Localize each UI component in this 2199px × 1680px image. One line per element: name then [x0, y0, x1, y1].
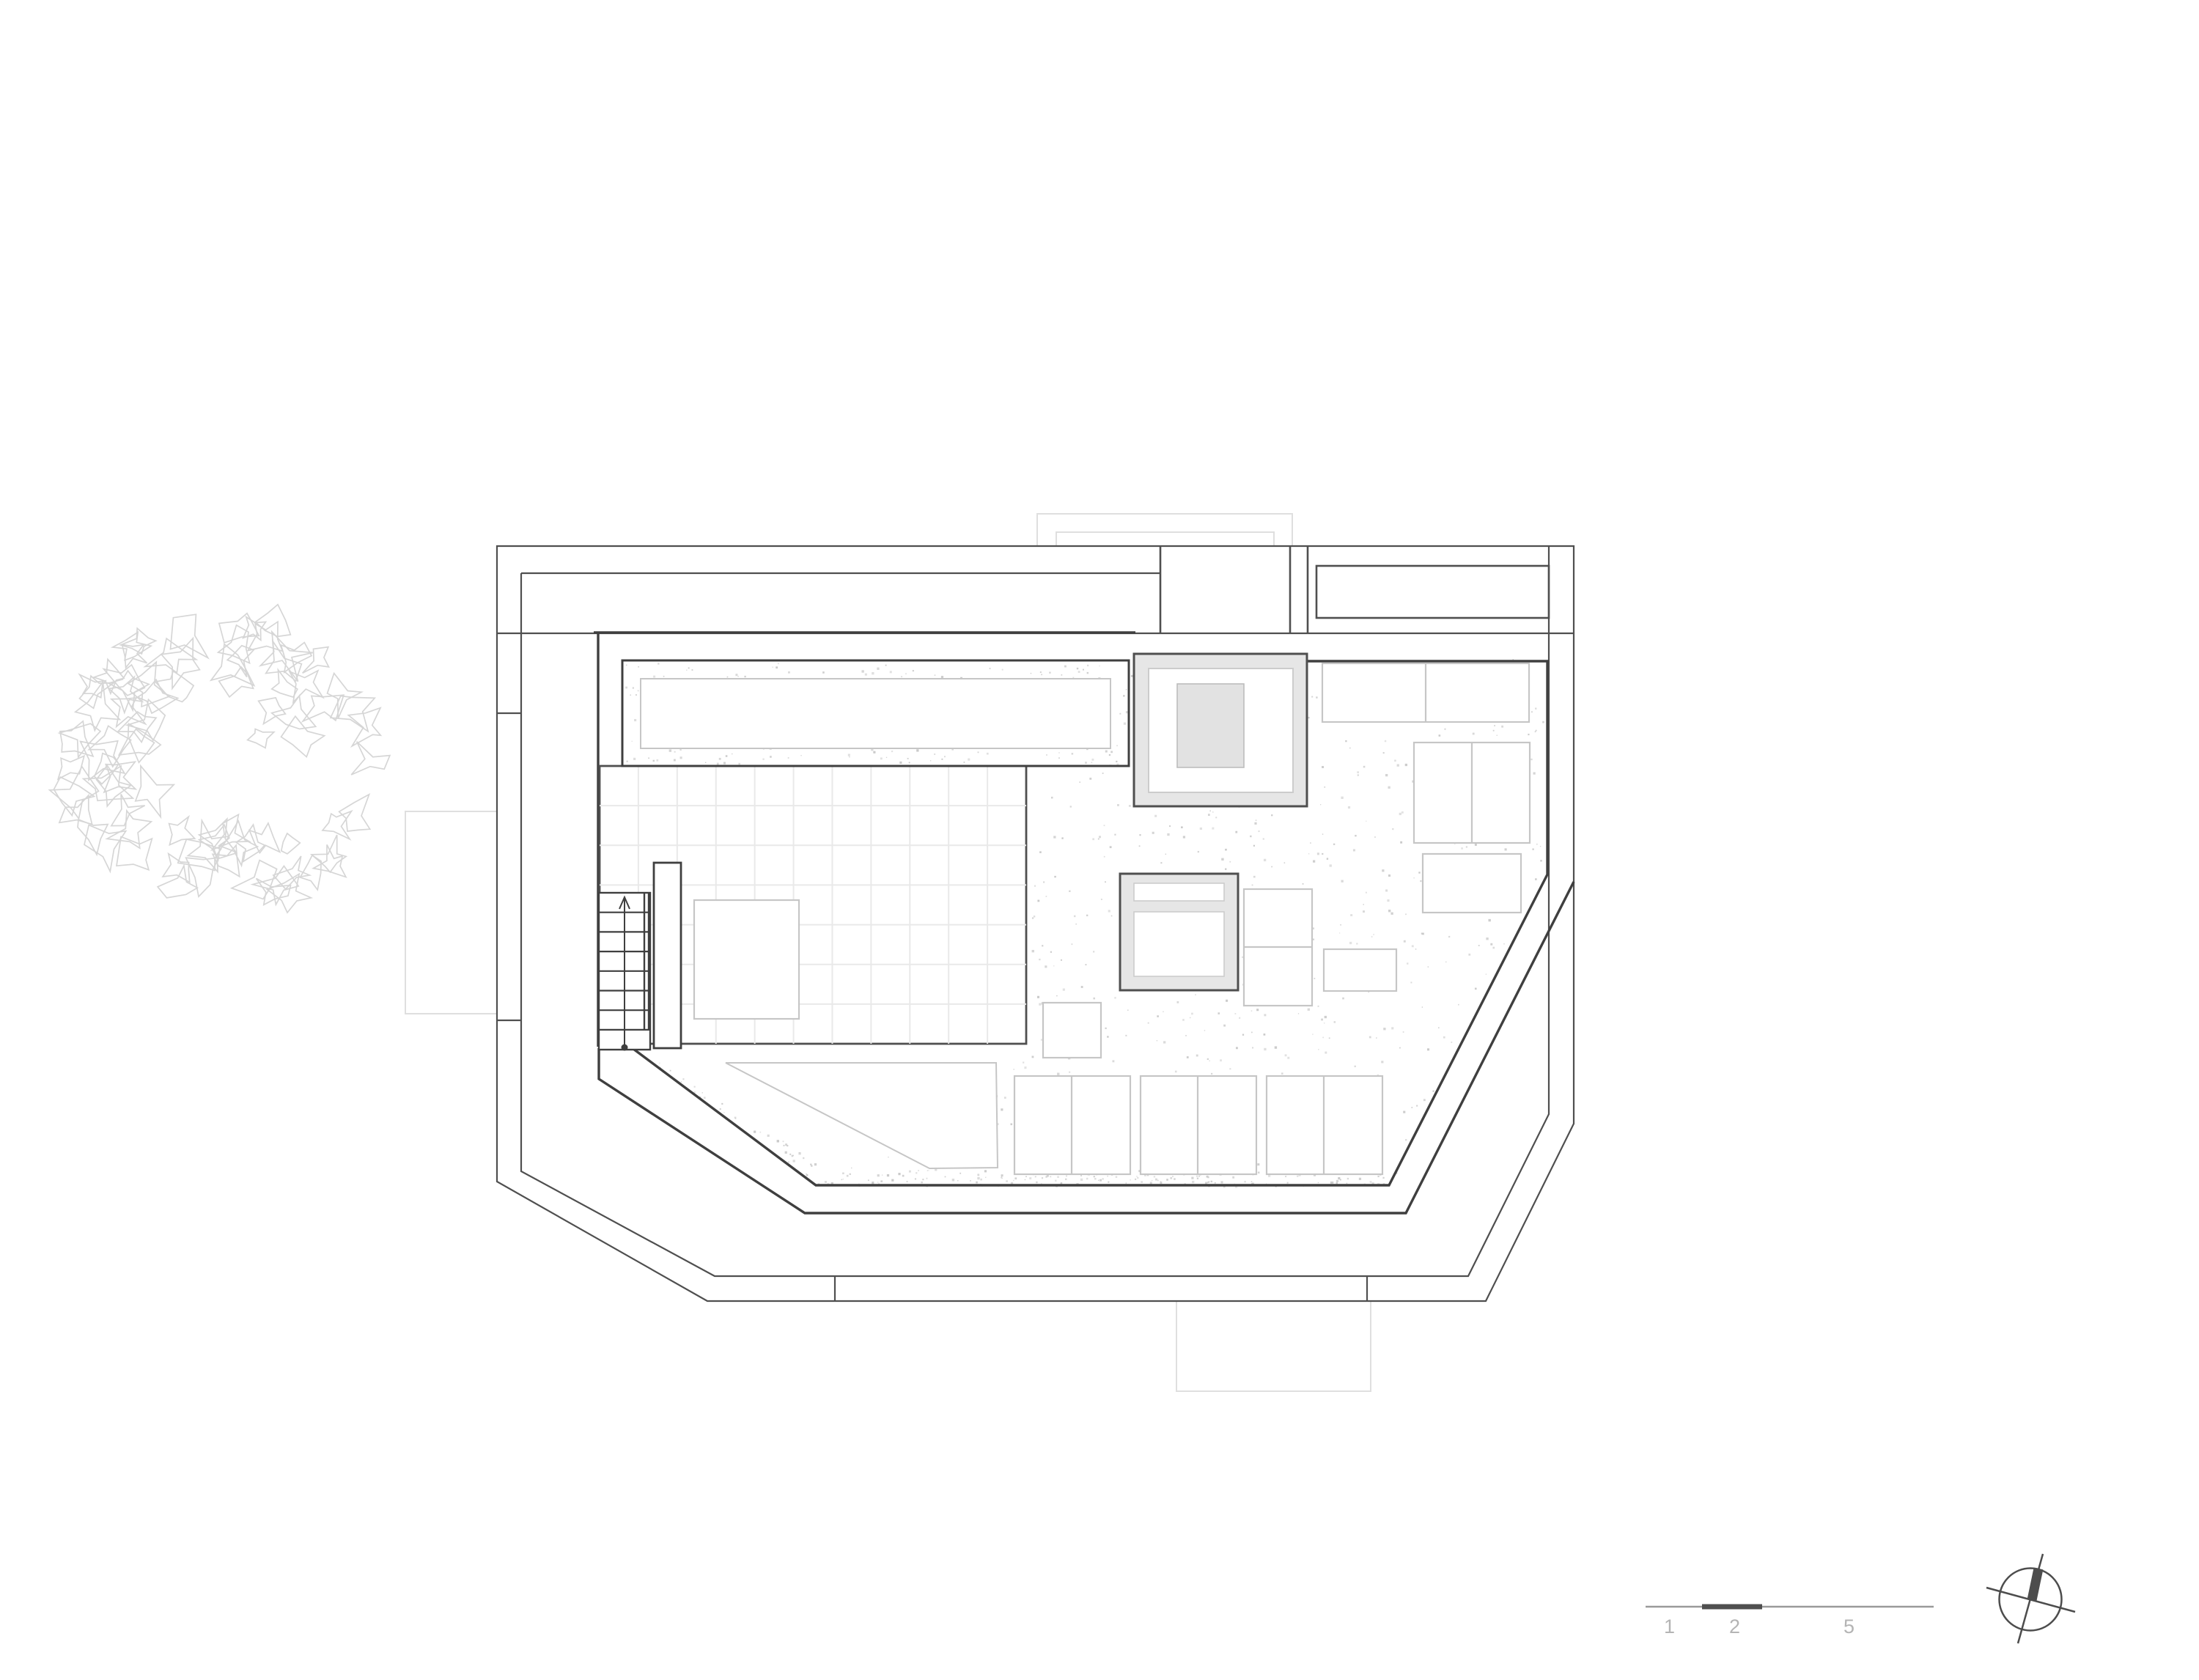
bench-grid-corner	[1043, 1003, 1101, 1058]
roof-plan-drawing: 1 2 5	[0, 0, 2199, 1680]
canvas: 1 2 5	[0, 0, 2199, 1680]
north-compass	[1986, 1554, 2075, 1643]
table-right	[1423, 854, 1521, 913]
compass-needle	[2032, 1569, 2038, 1600]
lounger-pair-1	[1014, 1076, 1130, 1174]
table-center	[1324, 949, 1396, 991]
scale-label-1: 1	[1664, 1615, 1676, 1637]
lounger-pair-2	[1141, 1076, 1256, 1174]
faint-outline-top-outer	[1037, 514, 1292, 548]
scale-segment	[1702, 1605, 1762, 1610]
chairs-pair-center	[1244, 889, 1312, 1006]
daybed-right	[1414, 743, 1530, 843]
scale-label-2: 2	[1729, 1615, 1741, 1637]
sofa-top-right	[1322, 663, 1529, 722]
lounger-pair-3	[1267, 1076, 1382, 1174]
skylight-small-opening-top	[1134, 883, 1224, 901]
wall-stub	[654, 863, 681, 1048]
staircase	[599, 893, 650, 1051]
skylight-large-center	[1177, 684, 1244, 767]
faint-outline-left-balcony	[405, 811, 497, 1014]
scale-bar: 1 2 5	[1646, 1605, 1934, 1638]
tile-skylight-opening	[694, 900, 799, 1019]
skylight-large	[1134, 654, 1307, 806]
scale-label-5: 5	[1843, 1615, 1855, 1637]
skylight-small-opening-main	[1134, 912, 1224, 976]
tree	[50, 605, 390, 913]
faint-outline-bottom-balcony	[1176, 1301, 1371, 1391]
stair-start-dot	[622, 1045, 628, 1051]
planter-top-inner	[641, 679, 1110, 748]
skylight-small	[1120, 874, 1238, 990]
